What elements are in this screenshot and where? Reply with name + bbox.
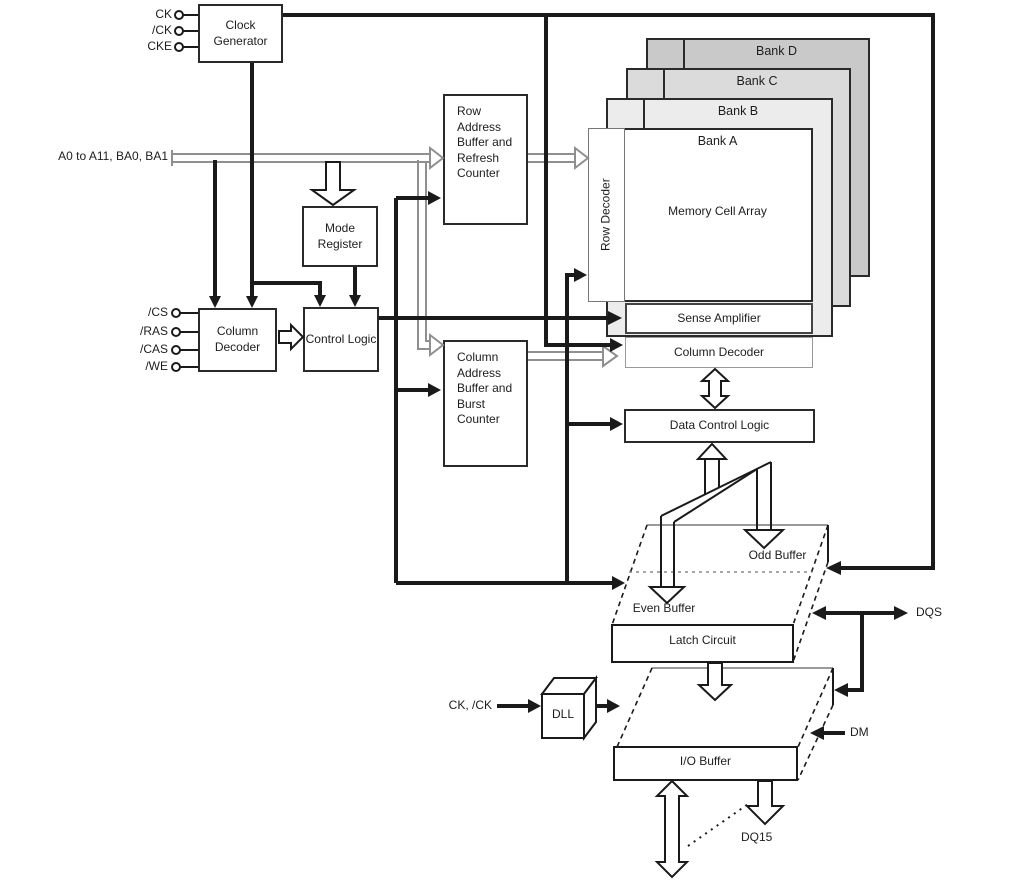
arrowhead xyxy=(428,191,441,205)
wiring-layer xyxy=(0,0,1031,895)
we-label: /WE xyxy=(110,360,168,374)
ras-label: /RAS xyxy=(110,325,168,339)
cas-label: /CAS xyxy=(110,343,168,357)
column-decoder-dcl-double-arrow xyxy=(702,369,728,408)
row-address-to-row-decoder xyxy=(528,148,588,168)
arrowhead xyxy=(894,606,908,620)
dll-label: DLL xyxy=(542,708,584,722)
dq15-arrow xyxy=(747,781,783,824)
io-dq-double-arrow xyxy=(657,781,687,877)
dq15-label: DQ15 xyxy=(741,831,772,845)
arrowhead xyxy=(607,699,620,713)
ck-pair-label: CK, /CK xyxy=(424,699,492,713)
command-input-pins xyxy=(172,309,198,371)
arrowhead xyxy=(610,417,623,431)
arrowhead xyxy=(209,296,221,308)
arrowhead xyxy=(574,268,587,282)
clock-feedback-wire xyxy=(283,15,933,568)
address-bus xyxy=(172,148,443,168)
arrowhead xyxy=(528,699,541,713)
bank-control-riser-wire xyxy=(567,275,610,583)
arrowhead xyxy=(349,295,361,307)
io-buffer-label: I/O Buffer xyxy=(614,755,797,769)
dcl-up-arrowhead xyxy=(698,444,726,459)
dqs-label: DQS xyxy=(916,606,942,620)
clock-drop-to-column-decoder xyxy=(546,15,610,345)
arrowhead xyxy=(246,296,258,308)
arrowhead xyxy=(314,295,326,307)
arrowhead xyxy=(612,576,625,590)
cs-label: /CS xyxy=(110,306,168,320)
even-buffer-label: Even Buffer xyxy=(618,602,710,616)
latch-circuit-label: Latch Circuit xyxy=(612,634,793,648)
arrowhead xyxy=(428,383,441,397)
ckb-label: /CK xyxy=(120,24,172,38)
bus-to-mode-register-arrow xyxy=(312,162,354,205)
decoder-to-control-arrow xyxy=(279,325,303,349)
block-diagram: Bank D Bank C Bank B Row Decoder Bank A … xyxy=(0,0,1031,895)
arrowhead xyxy=(834,683,848,697)
clock-input-pins xyxy=(175,11,198,51)
dqs-wire xyxy=(826,613,894,690)
bus-branch-column-address xyxy=(418,160,443,355)
column-address-to-column-decoder xyxy=(528,346,617,366)
arrowhead xyxy=(812,606,826,620)
arrowhead xyxy=(608,311,622,325)
cke-label: CKE xyxy=(120,40,172,54)
address-bus-label: A0 to A11, BA0, BA1 xyxy=(8,150,168,164)
clockgen-down-wire xyxy=(252,63,320,297)
ck-label: CK xyxy=(120,8,172,22)
odd-buffer-label: Odd Buffer xyxy=(720,549,835,563)
dm-label: DM xyxy=(850,726,869,740)
arrowhead xyxy=(610,338,623,352)
